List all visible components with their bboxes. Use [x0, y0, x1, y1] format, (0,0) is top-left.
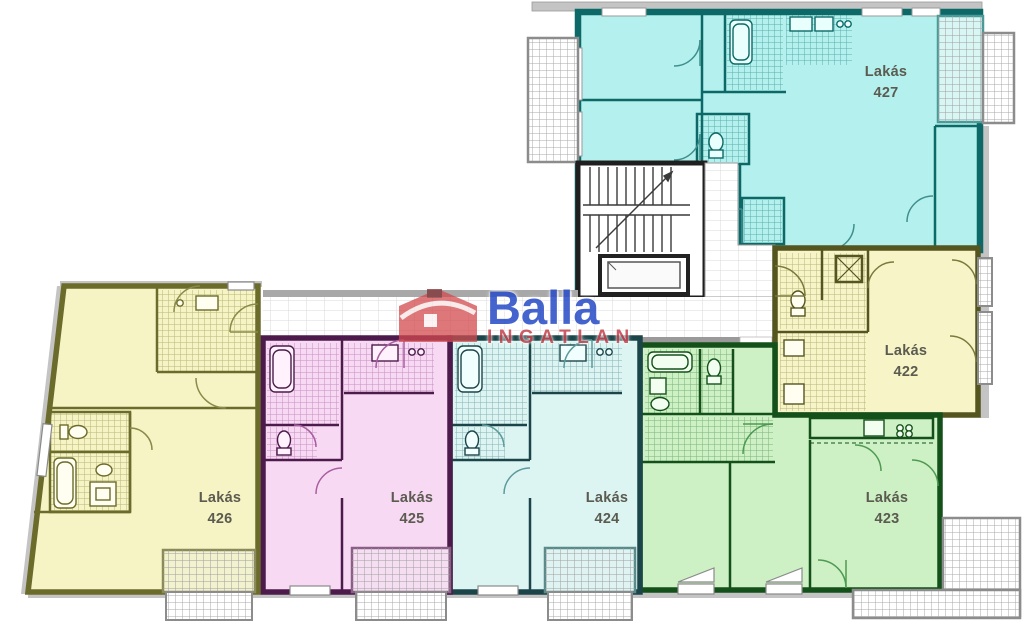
apartment-name: Lakás — [391, 488, 434, 509]
apartment-number: 426 — [199, 509, 242, 530]
apartment-label-424: Lakás 424 — [586, 488, 629, 530]
apartment-label-423: Lakás 423 — [866, 488, 909, 530]
balcony-427-left — [528, 38, 578, 162]
apartment-label-426: Lakás 426 — [199, 488, 242, 530]
apartment-label-425: Lakás 425 — [391, 488, 434, 530]
apartment-name: Lakás — [199, 488, 242, 509]
balcony-427-topright — [938, 16, 1014, 123]
apartment-name: Lakás — [865, 62, 908, 83]
apartment-label-427: Lakás 427 — [865, 62, 908, 104]
brand-text: Balla — [487, 286, 636, 329]
apartment-number: 425 — [391, 509, 434, 530]
brand-subtitle: INGATLAN — [487, 327, 636, 349]
apartment-label-422: Lakás 422 — [885, 341, 928, 383]
apartment-name: Lakás — [586, 488, 629, 509]
balla-ingatlan-watermark: Balla INGATLAN — [397, 286, 636, 349]
balcony-424 — [545, 548, 635, 620]
balcony-426 — [163, 550, 255, 620]
floorplan-canvas: Lakás 427 Lakás 422 Lakás 423 Lakás 424 … — [0, 0, 1024, 636]
apartment-422-area — [775, 248, 992, 415]
balcony-425 — [352, 548, 450, 620]
apartment-number: 427 — [865, 83, 908, 104]
house-icon — [397, 286, 479, 344]
apartment-number: 423 — [866, 509, 909, 530]
apartment-number: 424 — [586, 509, 629, 530]
apartment-name: Lakás — [885, 341, 928, 362]
apartment-426-area — [28, 282, 258, 594]
apartment-number: 422 — [885, 362, 928, 383]
apartment-name: Lakás — [866, 488, 909, 509]
